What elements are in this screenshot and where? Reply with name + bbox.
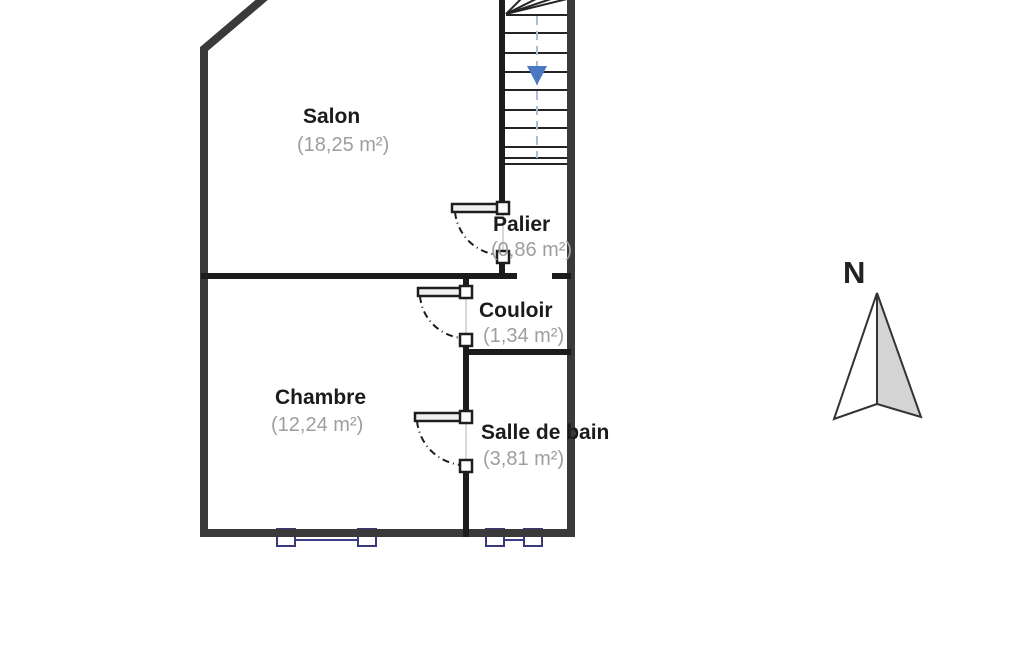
room-area-couloir: (1,34 m²): [483, 325, 564, 347]
room-area-salon: (18,25 m²): [297, 134, 389, 156]
floor-plan-canvas: Salon (18,25 m²) Palier (0,86 m²) Couloi…: [0, 0, 1025, 650]
room-area-chambre: (12,24 m²): [271, 414, 363, 436]
stair-down-arrow-icon: [527, 66, 547, 85]
room-name-couloir: Couloir: [479, 299, 553, 322]
compass: N: [834, 255, 921, 419]
compass-north-label: N: [843, 255, 865, 290]
stair-winder-steps: [506, 0, 567, 14]
staircase: [505, 0, 567, 164]
room-label-chambre: Chambre (12,24 m²): [271, 386, 366, 436]
room-name-palier: Palier: [493, 213, 550, 236]
room-name-salle-de-bain: Salle de bain: [481, 421, 609, 444]
room-area-salle-de-bain: (3,81 m²): [483, 448, 564, 470]
floor-plan-page: Salon (18,25 m²) Palier (0,86 m²) Couloi…: [0, 0, 1025, 650]
door-salle-de-bain: [415, 411, 472, 472]
room-name-salon: Salon: [303, 105, 360, 128]
room-area-palier: (0,86 m²): [491, 239, 572, 261]
room-label-salon: Salon (18,25 m²): [297, 105, 389, 156]
room-label-salle-de-bain: Salle de bain (3,81 m²): [481, 421, 609, 470]
compass-arrow-right-half: [877, 293, 921, 417]
room-name-chambre: Chambre: [275, 386, 366, 409]
room-label-couloir: Couloir (1,34 m²): [479, 299, 564, 347]
door-chambre: [418, 286, 472, 346]
compass-arrow-left-half: [834, 293, 877, 419]
